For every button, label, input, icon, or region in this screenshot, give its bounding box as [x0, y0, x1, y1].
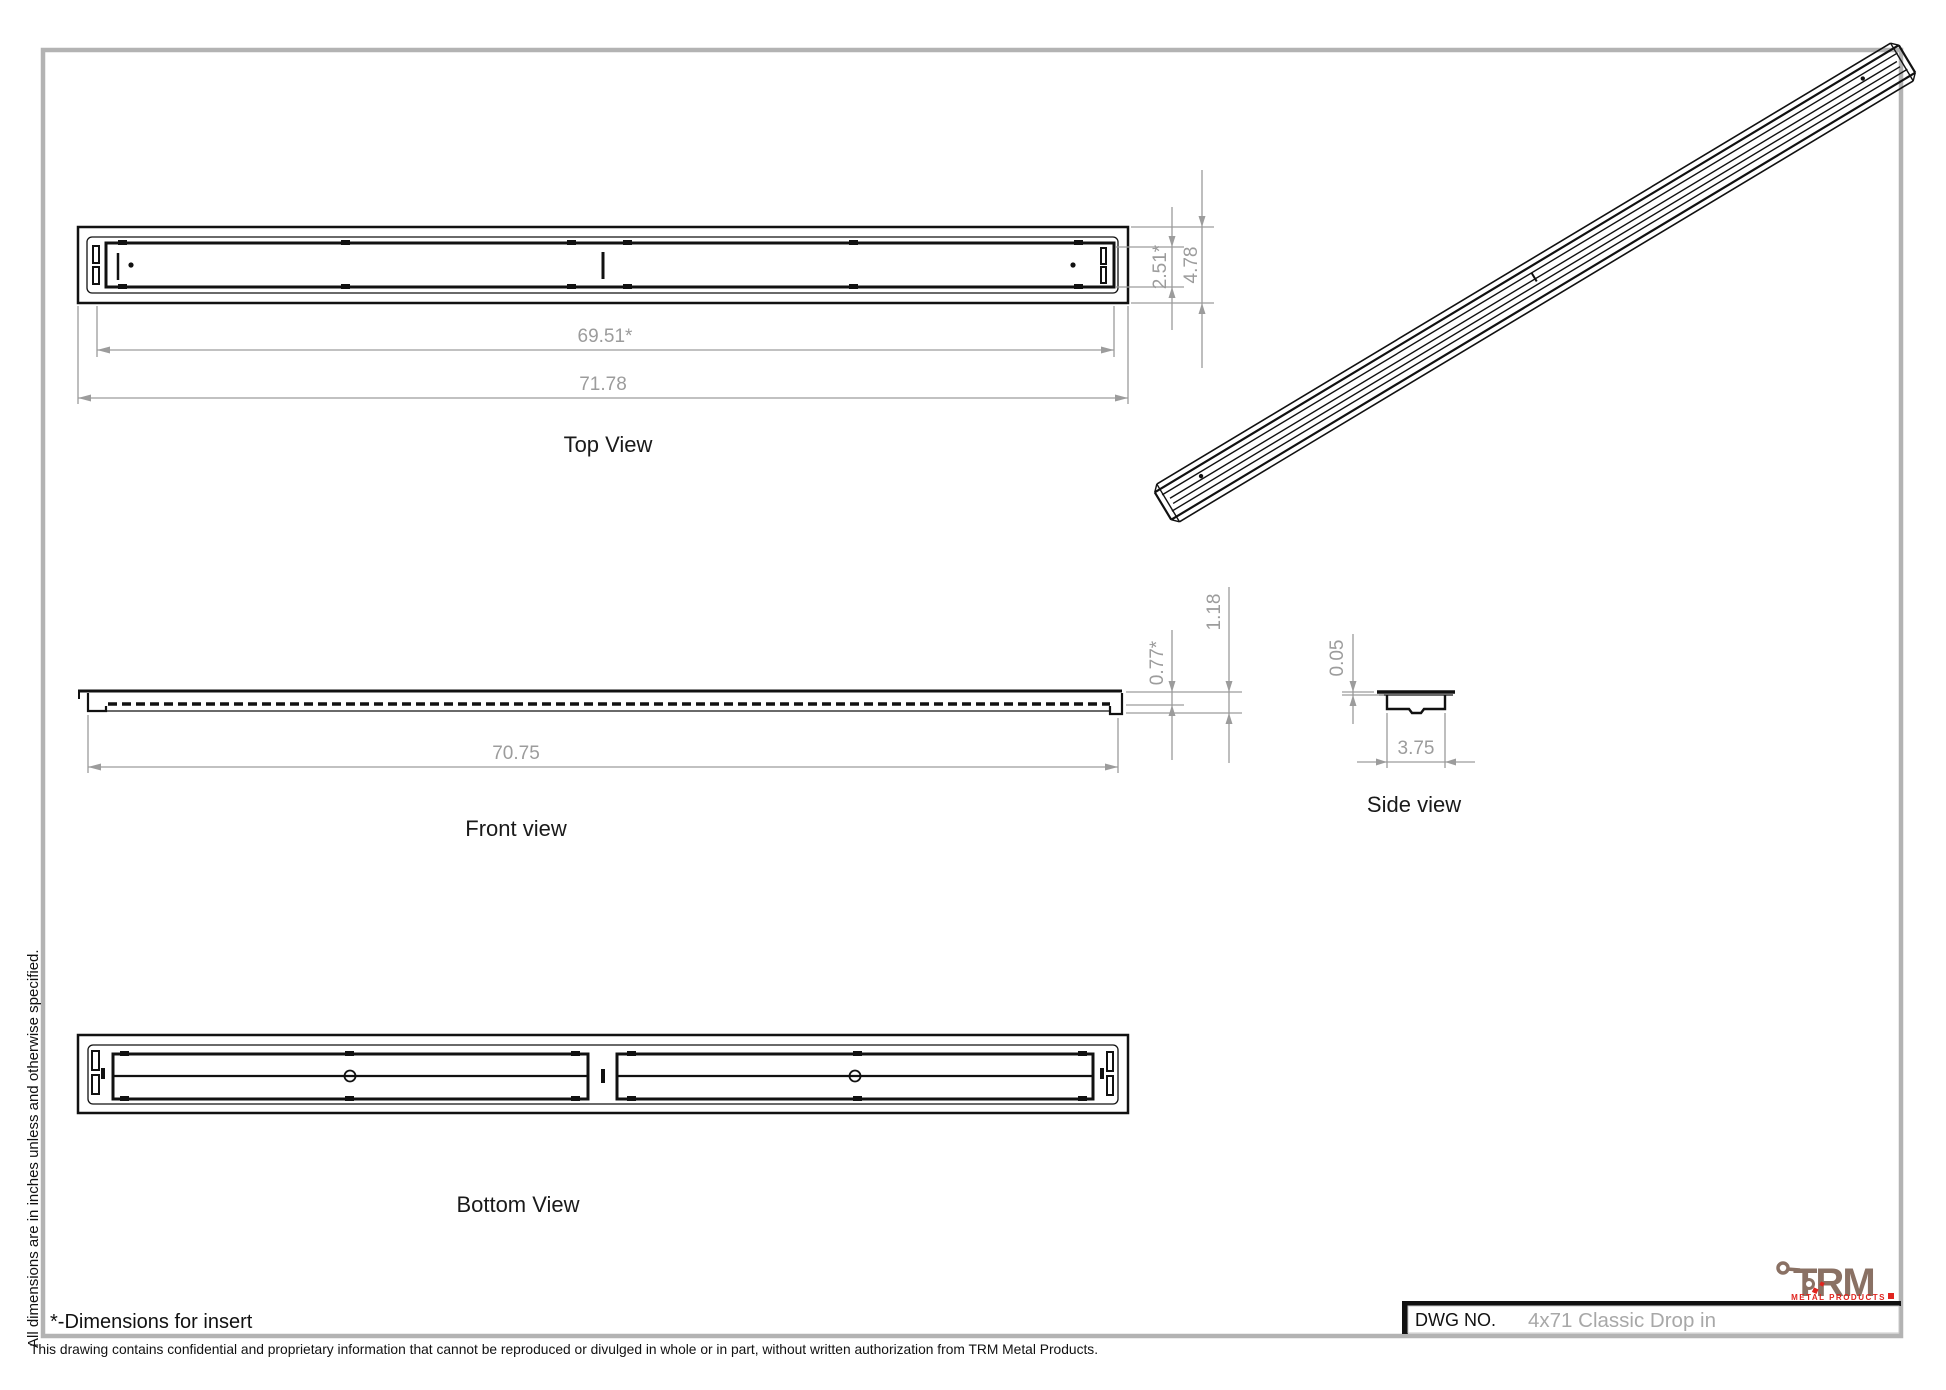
top-view-left-slot — [93, 267, 99, 284]
bottom-view-right-tick — [1100, 1068, 1104, 1079]
side-view-dimensions: 0.05 3.75 — [1327, 634, 1475, 768]
dim-insert-depth: 0.77* — [1147, 640, 1168, 685]
dim-overall-width: 4.78 — [1181, 247, 1202, 284]
top-view-hole — [128, 262, 133, 267]
bottom-view-right-slot — [1107, 1052, 1113, 1071]
bottom-view-center-tick — [601, 1069, 605, 1083]
bottom-view-left-slot — [92, 1075, 99, 1094]
dim-overall-height: 1.18 — [1204, 594, 1225, 631]
top-view-right-slot — [1101, 267, 1106, 283]
bottom-view-label: Bottom View — [456, 1192, 579, 1217]
isometric-view — [1152, 40, 1919, 525]
logo-circle-icon — [1778, 1263, 1788, 1273]
top-view-left-slot — [93, 246, 99, 263]
bottom-view-right-slot — [1107, 1076, 1113, 1095]
units-note: All dimensions are in inches unless and … — [25, 949, 42, 1348]
trm-logo: TRM METAL PRODUCTS — [1778, 1261, 1894, 1305]
top-view: 69.51* 71.78 2.51* 4.78 Top View — [78, 170, 1214, 457]
confidentiality-note: This drawing contains confidential and p… — [30, 1342, 1098, 1357]
top-view-insert — [106, 243, 1114, 287]
title-block-left-bar — [1402, 1301, 1408, 1334]
title-block: DWG NO. 4x71 Classic Drop in — [1402, 1301, 1901, 1334]
top-view-right-slot — [1101, 248, 1106, 264]
dim-insert-width: 2.51* — [1150, 244, 1171, 289]
bottom-view-left-slot — [92, 1051, 99, 1070]
front-view-dimensions: 0.77* 1.18 70.75 — [88, 587, 1242, 773]
side-view: 0.05 3.75 Side view — [1327, 634, 1475, 817]
front-view-label: Front view — [465, 816, 567, 841]
top-view-hole — [1070, 262, 1075, 267]
front-view-right-bracket — [1110, 693, 1122, 714]
top-view-label: Top View — [564, 432, 653, 457]
logo-red-square-icon — [1888, 1293, 1894, 1299]
dim-overall-length: 71.78 — [579, 374, 627, 395]
logo-circle-icon — [1805, 1280, 1814, 1289]
dim-body-width: 3.75 — [1398, 738, 1435, 759]
bottom-view: Bottom View — [78, 1035, 1128, 1217]
dwg-no-label: DWG NO. — [1415, 1310, 1496, 1330]
logo-tagline: METAL PRODUCTS — [1791, 1293, 1886, 1302]
insert-dimensions-note: *-Dimensions for insert — [50, 1311, 253, 1333]
dim-insert-length: 69.51* — [578, 326, 634, 347]
front-view: 0.77* 1.18 70.75 Front view — [78, 587, 1242, 841]
dim-flange-thickness: 0.05 — [1327, 640, 1348, 677]
bottom-view-left-tick — [101, 1068, 105, 1079]
front-view-left-bracket — [88, 693, 106, 711]
dim-body-length: 70.75 — [492, 743, 540, 764]
side-view-body — [1387, 695, 1445, 713]
dwg-no-value: 4x71 Classic Drop in — [1528, 1309, 1716, 1332]
top-view-tabs — [118, 240, 1083, 289]
drawing-sheet: 69.51* 71.78 2.51* 4.78 Top View — [0, 0, 1946, 1390]
side-view-label: Side view — [1367, 792, 1461, 817]
